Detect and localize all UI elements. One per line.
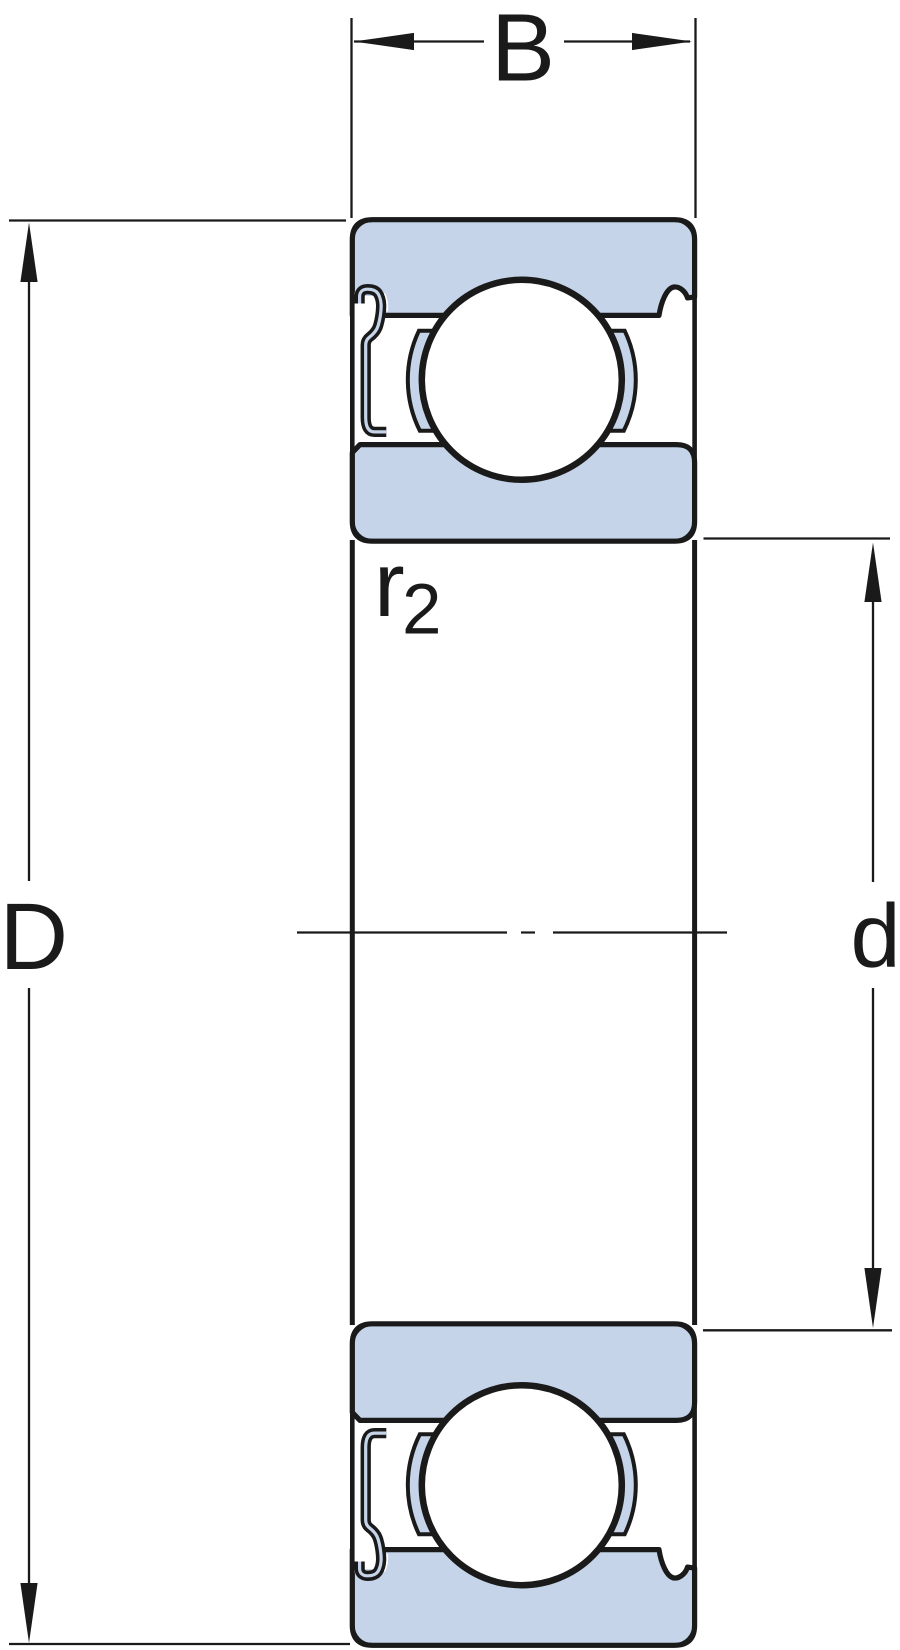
svg-text:D: D [0,884,68,990]
svg-text:d: d [850,887,900,987]
svg-text:2: 2 [402,571,442,650]
svg-text:r: r [374,534,405,636]
svg-text:B: B [491,0,555,102]
